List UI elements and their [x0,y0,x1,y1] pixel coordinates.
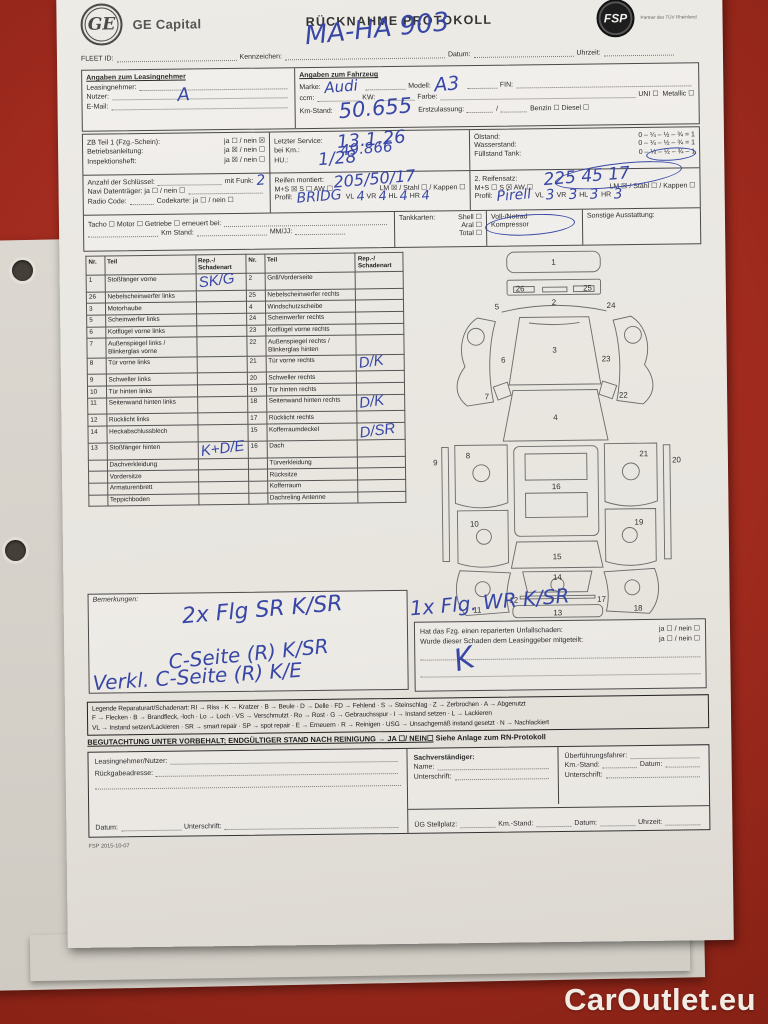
damage-code-cell [197,413,248,425]
sonstige-cell: Sonstige Ausstattung: [582,208,700,244]
hl-label: HL [579,191,588,198]
vr-label: VR [557,191,567,198]
fsp-logo-icon: FSP [596,0,634,38]
vl-label: VL [346,193,355,200]
funk-label: mit Funk: [225,177,254,184]
depth-handwriting: 4 [422,193,431,200]
damage-code-cell [358,491,406,503]
part-number: 23 [247,325,266,337]
navi-label: Navi Datenträger: ja ☐ / nein ☐ [88,187,186,196]
depth-handwriting: 3 [568,191,577,199]
col-schaden-right: Rep.-/ Schadenart [355,252,403,271]
metallic-checkbox: Metallic ☐ [662,89,694,97]
kompressor-label: Kompressor [491,221,529,228]
leasingnehmer-field [139,82,287,91]
reifen-montiert-label: Reifen montiert: [274,177,324,185]
bemerkungen-label: Bemerkungen: [89,591,407,606]
fleet-id-field [116,53,236,61]
vr-label: VR [366,193,376,200]
diagram-zone-number: 1 [551,258,556,267]
part-name: Tür vorne rechts [266,355,357,373]
part-number: 21 [247,356,266,373]
part-name: Dach [267,440,358,458]
part-name: Teppichboden [107,493,198,506]
part-number: 3 [86,303,105,315]
ih-checkboxes: ja ☒ / nein ☐ [224,155,265,163]
diagram-zone-number: 8 [466,451,471,460]
damage-code-cell [358,468,406,480]
card-aral-checkbox: Aral ☐ [461,221,482,229]
damage-code-cell [197,384,248,396]
hl-label: HL [388,193,397,200]
row-tires: Anzahl der Schlüssel:mit Funk:2 Navi Dat… [83,167,699,215]
diagram-zone-number: 17 [597,595,607,604]
expert-signature-column: Sachverständiger: Name: Unterschrift: [407,747,558,806]
part-name: Kofferraumdeckel [266,423,357,441]
service-cell: Letzter Service:13.1.26 bei Km.:49.866 H… [269,130,469,172]
part-number: 1 [86,275,105,292]
tires-mounted-cell: Reifen montiert:205/50/17 M+S ☒ S ☐ AW ☐… [269,171,469,212]
oelstand-label: Ölstand: [474,133,500,140]
col-nr-left: Nr. [86,256,105,275]
ug-km-label: Km.-Stand: [498,820,533,827]
damage-code-cell [196,337,247,357]
hu-handwriting: 1/28 [318,153,357,165]
hr-label: HR [601,191,611,198]
damage-code-cell: SK/G [196,273,247,290]
part-number: 10 [87,386,106,398]
profil-label: Profil: [475,192,493,199]
col-nr-right: Nr. [246,254,265,273]
slash: / [496,105,498,112]
part-name: Außenspiegel links / Blinkerglas vorne [105,337,196,357]
km-stand-handwriting: 50.655 [338,100,412,116]
question-1-checkboxes: ja ☐ / nein ☐ [659,624,700,632]
notrad-cell: Voll-/Notrad Kompressor [486,210,582,246]
keys-cell: Anzahl der Schlüssel:mit Funk:2 Navi Dat… [83,174,269,215]
page-title: RÜCKNAHME PROTOKOLL [201,12,596,31]
fleet-id-line: FLEET ID: Kennzeichen: Datum: Uhrzeit: [81,48,699,63]
damage-code-cell: D/K [357,354,405,371]
damage-code-cell: D/SR [357,423,405,440]
lessee-title: Angaben zum Leasingnehmer [86,72,290,81]
damage-code-cell [198,493,249,505]
datum-label: Datum: [95,824,118,831]
ug-uhrzeit-label: Uhrzeit: [638,818,662,825]
table-row: TeppichbodenDachreling Antenne [89,491,406,507]
damage-code-cell [197,356,248,373]
part-number: 12 [88,414,107,426]
betriebsanleitung-label: Betriebsanleitung: [87,148,143,156]
uf-km-label: Km.-Stand: [565,762,600,769]
part-name: Stoßfänger vorne [105,274,196,292]
second-tire-set-cell: 2. Reifensatz:225 45 17 M+S ☐ S ☒ AW ☐LM… [469,168,699,210]
damage-code-handwriting: D/K [359,395,385,410]
parts-table-body: 1Stoßfänger vorneSK/G2Grill/Vorderseite2… [86,271,406,506]
email-field [111,101,287,110]
accident-questions-box: Hat das Fzg. einen reparierten Unfallsch… [414,618,707,692]
damage-code-cell [358,439,406,456]
damage-code-handwriting: SK/G [198,273,235,290]
tank-scale: 0 – ¼ – ½ – ¾ – 1 [639,148,696,156]
nutzer-field [112,91,288,100]
modell-handwriting: A3 [434,79,460,91]
kennzeichen-field [285,51,445,60]
damage-code-cell [356,288,404,300]
damage-code-cell [356,311,404,323]
depth-handwriting: 3 [545,191,554,199]
sonstige-label: Sonstige Ausstattung: [587,212,655,220]
part-number: 7 [87,338,106,358]
uni-checkbox: UNI ☐ [638,89,658,97]
part-name: Tür vorne links [106,357,197,375]
damage-code-handwriting: D/SR [359,422,396,439]
lessee-section: Angaben zum Leasingnehmer Leasingnehmer:… [82,68,295,131]
km-stand-label: Km-Stand: [300,107,333,114]
damage-code-cell [196,313,247,325]
tire-brand-handwriting: BRIDG [296,192,342,203]
part-number: 25 [246,290,265,302]
datum-label: Datum: [448,51,471,58]
bemerkungen-box: Bemerkungen: [88,590,409,694]
ge-monogram: GE [88,14,116,34]
nutzer-handwriting: A [177,90,190,100]
diagram-zone-number: 5 [495,302,500,311]
tank-label: Füllstand Tank: [474,150,521,158]
fleet-id-label: FLEET ID: [81,55,114,62]
depth-handwriting: 4 [399,193,408,200]
part-number: 11 [88,398,107,415]
profil-label: Profil: [275,194,293,201]
diagram-zone-number: 20 [672,455,682,464]
tacho-cell: Tacho ☐ Motor ☐ Getriebe ☐ erneuert bei:… [84,212,394,251]
damage-code-cell [198,458,249,470]
part-number: 2 [246,273,265,290]
diagram-zone-number: 7 [485,392,490,401]
codekarte-label: Codekarte: ja ☐ / nein ☐ [157,195,234,204]
levels-cell: Ölstand:0 – ¼ – ½ – ¾ = 1 Wasserstand:0 … [469,127,699,170]
part-number: 20 [247,372,266,384]
modell-label: Modell: [408,83,431,90]
part-number: 4 [246,301,265,313]
part-number: 16 [248,441,267,458]
diagram-zone-number: 11 [473,606,482,615]
diagram-zone-number: 10 [470,520,480,529]
depth-handwriting: 4 [356,194,365,201]
lessee-signature-column: Leasingnehmer/Nutzer: Rückgabeadresse: D… [88,749,407,837]
km-stand2-label: Km Stand: [161,229,194,236]
vl-label: VL [535,192,544,199]
signature-section: Leasingnehmer/Nutzer: Rückgabeadresse: D… [87,744,710,838]
tire-brand2-handwriting: Pirell [496,191,531,201]
form-version-code: FSP 2015-10-07 [89,843,130,849]
email-label: E-Mail: [87,103,109,110]
hr-label: HR [410,193,420,200]
fin-field [516,79,691,88]
diagram-zone-number: 18 [634,604,644,613]
diagram-zone-number: 9 [433,458,438,467]
punch-hole [5,540,26,561]
part-number [89,471,108,483]
part-number: 19 [247,384,266,396]
leasingnehmer-label: Leasingnehmer: [86,84,136,92]
diagram-zone-number: 16 [552,482,562,491]
uf-datum-label: Datum: [640,761,663,768]
damage-code-cell: D/K [357,394,405,411]
diagram-zone-number: 12 [509,596,519,605]
radio-code-label: Radio Code: [88,198,127,205]
sachverstaendiger-label: Sachverständiger: [413,754,474,762]
datum-field [473,49,573,57]
part-number: 15 [248,424,267,441]
ln-nutzer-label: Leasingnehmer/Nutzer: [95,757,168,765]
damage-code-handwriting: D/K [358,355,384,370]
part-number: 5 [87,315,106,327]
ge-capital-logo-icon: GE [80,3,123,46]
damage-code-cell [358,479,406,491]
damage-code-cell [197,396,248,413]
part-name: Stoßfänger hinten [107,442,198,460]
vehicle-section: Angaben zum Fahrzeug Marke: Audi Modell:… [294,63,699,128]
depth-handwriting: 4 [378,193,387,200]
question-2: Wurde dieser Schaden dem Leasinggeber mi… [420,637,583,646]
car-exploded-diagram: 1262525243623722482192010191615111814121… [405,244,706,622]
part-number [249,493,268,505]
part-number: 8 [87,358,106,375]
damage-code-cell [196,302,247,314]
part-name: Dachreling Antenne [267,492,358,505]
wasserstand-scale: 0 – ¼ – ½ – ¾ = 1 [638,139,695,147]
part-name: Grill/Vorderseite [265,272,356,290]
col-teil-right: Teil [264,253,355,273]
part-number [248,458,267,470]
diagram-zone-number: 13 [553,608,563,617]
assessment-text: BEGUTACHTUNG UNTER VORBEHALT; ENDGÜLTIGE… [87,734,433,747]
part-name: Seitenwand hinten links [106,397,197,415]
transfer-driver-column: Überführungsfahrer: Km.-Stand:Datum: Unt… [557,745,709,804]
documents-cell: ZB Teil 1 (Fzg.-Schein):ja ☐ / nein ☒ Be… [83,133,269,175]
tacho-checkboxes: Tacho ☐ Motor ☐ Getriebe ☐ erneuert bei: [88,219,221,229]
tankkarten-cell: Tankkarten:Shell ☐ Aral ☐ Total ☐ [394,211,486,247]
damage-code-cell [356,271,404,288]
part-number: 14 [88,426,107,443]
letzter-service-label: Letzter Service: [274,137,323,145]
photo-scene: GE GE Capital RÜCKNAHME PROTOKOLL FSP Pa… [0,0,768,1024]
part-number: 18 [248,396,267,413]
zb-label: ZB Teil 1 (Fzg.-Schein): [87,138,160,146]
damage-code-cell [196,325,247,337]
diagram-zone-number: 19 [634,518,644,527]
part-number [89,483,108,495]
card-total-checkbox: Total ☐ [459,229,482,237]
wasserstand-label: Wasserstand: [474,141,517,149]
part-number: 26 [86,292,105,304]
sv-unterschrift-label: Unterschrift: [414,773,452,780]
diagram-zone-numbers: 1262525243623722482192010191615111814121… [431,256,684,619]
reifensatz2-label: 2. Reifensatz: [474,175,517,183]
damage-code-cell [196,290,247,302]
tankkarten-label: Tankkarten: [399,214,435,221]
ug-stellplatz-label: ÜG Stellplatz: [414,821,457,829]
zb-checkboxes: ja ☐ / nein ☒ [224,136,265,144]
diagram-zone-number: 3 [552,346,557,355]
damage-code-cell [356,300,404,312]
fin-label: FIN: [500,82,513,89]
depth-handwriting: 3 [590,191,599,199]
question-1: Hat das Fzg. einen reparierten Unfallsch… [420,627,563,636]
diagram-zone-number: 21 [639,449,649,458]
col-teil-left: Teil [104,255,195,275]
ueberfuehrungsfahrer-label: Überführungsfahrer: [564,752,627,760]
ug-stellplatz-row: ÜG Stellplatz: Km.-Stand: Datum: Uhrzeit… [408,805,709,831]
bei-km-label: bei Km.: [274,147,300,154]
part-number: 22 [247,336,266,356]
part-number: 13 [88,443,107,460]
damage-code-cell [358,456,406,468]
diagram-zone-number: 24 [607,301,617,310]
damage-code-cell [356,323,404,335]
part-number [249,481,268,493]
inspektionsheft-label: Inspektionsheft: [87,158,136,166]
part-number [89,495,108,507]
marke-handwriting: Audi [324,82,358,92]
part-number: 17 [248,413,267,425]
diagram-zone-number: 23 [602,354,612,363]
question-2-checkboxes: ja ☐ / nein ☐ [659,634,700,642]
reifensatz2-handwriting: 225 45 17 [543,169,630,185]
diagram-zone-number: 22 [619,391,629,400]
part-number [88,460,107,472]
brand-name: GE Capital [132,16,201,32]
diagram-zone-number: 6 [501,356,506,365]
damage-code-cell [197,373,248,385]
tires-mounted-handwriting: 205/50/17 [334,172,416,187]
form-header: GE GE Capital RÜCKNAHME PROTOKOLL FSP Pa… [80,0,699,48]
oelstand-scale: 0 – ¼ – ½ – ¾ = 1 [638,131,695,139]
assessment-suffix: Siehe Anlage zum RN-Protokoll [433,732,545,742]
part-name: Heckabschlussblech [107,425,198,443]
condition-box: ZB Teil 1 (Fzg.-Schein):ja ☐ / nein ☒ Be… [82,126,701,252]
diagram-zone-number: 25 [583,283,593,292]
ba-checkboxes: ja ☒ / nein ☐ [224,146,265,154]
damage-code-handwriting: K+D/E [200,441,245,459]
part-number: 6 [87,327,106,339]
diagram-zone-number: 26 [516,284,526,293]
row-extras: Tacho ☐ Motor ☐ Getriebe ☐ erneuert bei:… [84,207,700,251]
rueckgabeadresse-label: Rückgabeadresse: [95,769,153,777]
ug-datum-label: Datum: [574,819,597,826]
marke-label: Marke: [299,84,320,91]
part-name: Außenspiegel rechts / Blinkerglas hinten [265,335,356,355]
part-name: Seitenwand hinten rechts [266,395,357,413]
car-diagram-svg: 1262525243623722482192010191615111814121… [405,244,706,622]
uhrzeit-field [604,48,674,56]
schluessel-label: Anzahl der Schlüssel: [87,178,154,186]
parts-damage-table: Nr. Teil Rep.-/ Schadenart Nr. Teil Rep.… [85,252,406,507]
caroutlet-watermark: CarOutlet.eu [564,982,756,1018]
damage-code-cell: K+D/E [198,441,249,458]
diagram-zone-number: 15 [553,552,563,561]
kennzeichen-label: Kennzeichen: [239,53,282,61]
damage-code-cell [198,481,249,493]
mmjj-label: MM/JJ: [270,228,293,235]
funk-handwriting: 2 [256,177,265,185]
uhrzeit-label: Uhrzeit: [576,49,600,56]
diagram-zone-number: 14 [553,573,563,582]
lessee-vehicle-box: Angaben zum Leasingnehmer Leasingnehmer:… [81,62,700,132]
punch-hole [12,260,33,281]
partner-tagline: Partner des TÜV Rheinland [640,14,698,21]
erstzulassung-label: Erstzulassung: [418,106,464,114]
part-number: 9 [87,374,106,386]
depth-handwriting: 3 [613,190,622,198]
diesel-checkbox: Diesel ☐ [562,103,590,111]
damage-code-cell [198,469,249,481]
part-number [248,469,267,481]
hu-label: HU.: [274,157,288,164]
benzin-checkbox: Benzin ☐ [530,103,560,111]
unterschrift-label: Unterschrift: [184,823,222,830]
ccm-label: ccm: [299,94,314,101]
diagram-zone-number: 2 [552,298,557,307]
sv-name-label: Name: [414,764,435,771]
notrad-label: Voll-/Notrad [491,213,528,220]
part-number: 24 [247,313,266,325]
damage-code-legend: Legende Reparaturart/Schadenart: RI → Ri… [87,694,709,736]
nutzer-label: Nutzer: [86,93,109,100]
diagram-zone-number: 4 [553,413,558,422]
protocol-form-page: GE GE Capital RÜCKNAHME PROTOKOLL FSP Pa… [56,0,734,948]
uf-unterschrift-label: Unterschrift: [565,771,603,778]
damage-code-cell [357,371,405,383]
